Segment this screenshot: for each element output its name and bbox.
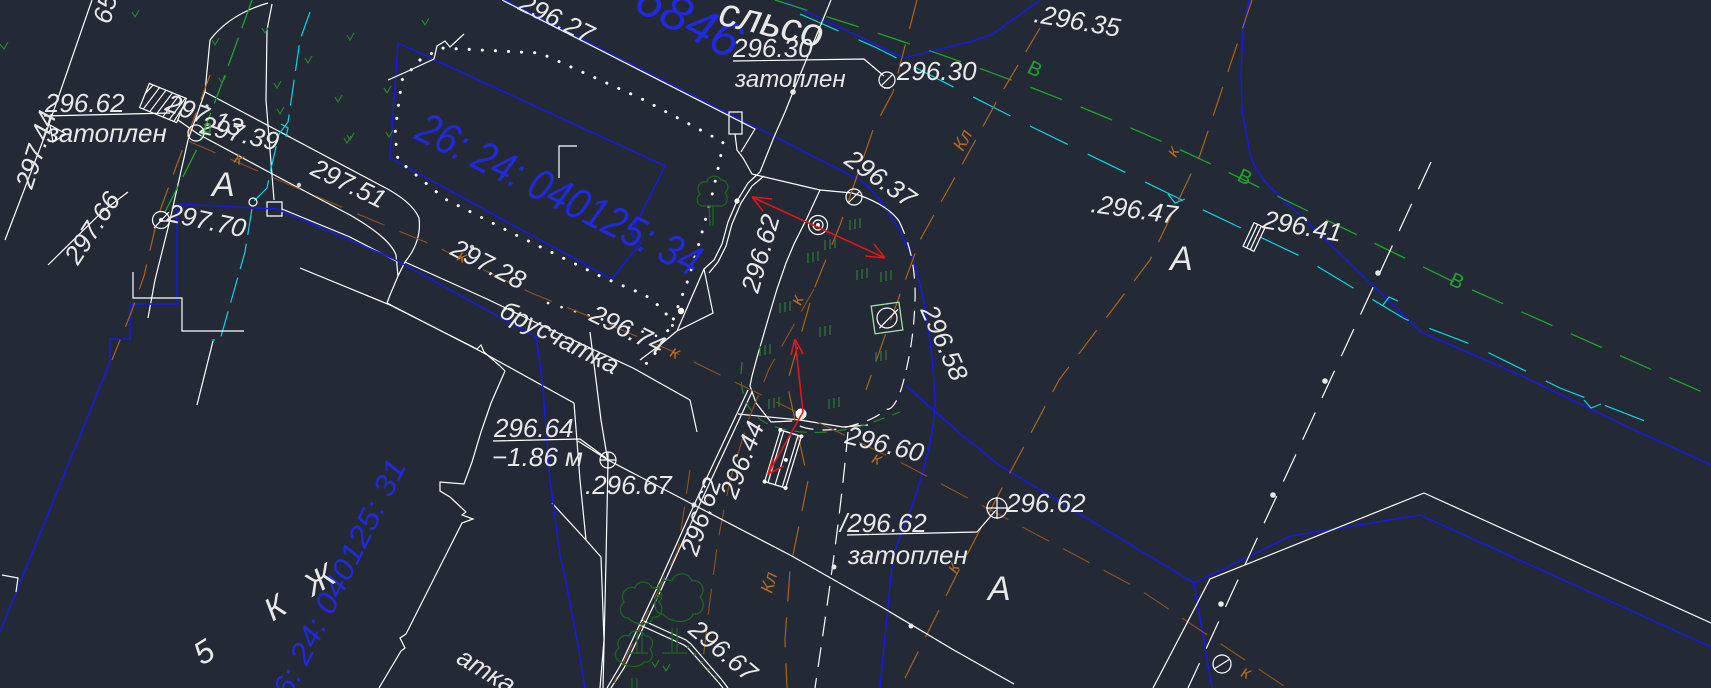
svg-text:296.30: 296.30 — [896, 56, 977, 86]
svg-text:А: А — [986, 570, 1011, 608]
svg-text:А: А — [210, 166, 235, 204]
svg-text:296.62: 296.62 — [1005, 488, 1086, 518]
svg-text:А: А — [1168, 240, 1193, 278]
svg-text:296.64: 296.64 — [493, 413, 574, 443]
svg-text:.296.67: .296.67 — [585, 470, 673, 500]
svg-text:затоплен: затоплен — [734, 66, 846, 93]
svg-text:−1.86 м: −1.86 м — [492, 442, 583, 472]
svg-text:296.62: 296.62 — [44, 88, 125, 118]
svg-text:296.30: 296.30 — [732, 33, 813, 63]
